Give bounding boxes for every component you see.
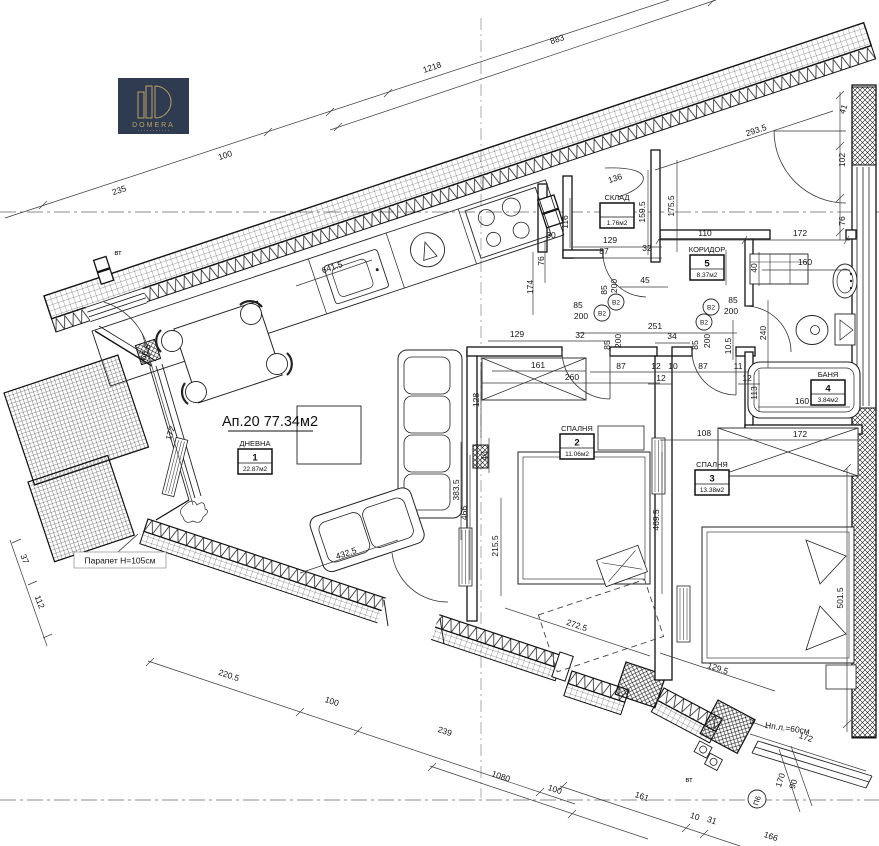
dimension-label: 160	[798, 257, 812, 267]
svg-text:22.87м2: 22.87м2	[243, 466, 268, 473]
door-size-marker: В2	[608, 294, 624, 310]
dimension-label: 172	[793, 429, 807, 439]
dimension-label: 172	[793, 228, 807, 238]
dimension-label: 90	[787, 778, 800, 790]
dimension-label: 466	[459, 506, 469, 520]
dimension-label: 100	[217, 148, 234, 162]
dimension-label: 170	[773, 772, 787, 789]
dimension-label: 31	[706, 814, 718, 827]
axis-marker: П6	[748, 790, 766, 808]
dimension-label: 85	[599, 285, 609, 295]
svg-text:ДНЕВНА: ДНЕВНА	[240, 439, 271, 448]
round-basin	[406, 228, 449, 271]
svg-text:В2: В2	[700, 320, 708, 327]
parapet-note: Парапет Н=105см	[74, 552, 166, 568]
svg-text:СПАЛНЯ: СПАЛНЯ	[561, 424, 593, 433]
dimension-label: 129	[603, 235, 617, 245]
dimension-label: 108	[697, 428, 711, 438]
dimension-label: 272.5	[565, 617, 589, 633]
dimension-label: 260	[565, 372, 579, 382]
dimension-label: 40	[479, 451, 489, 461]
dimension-label: 220.5	[217, 667, 241, 683]
svg-text:В2: В2	[598, 311, 606, 318]
chair	[156, 330, 182, 352]
dimension-label: 175.5	[666, 195, 676, 217]
dimension-label: 37	[18, 553, 31, 566]
dimension-label: 200	[574, 311, 588, 321]
dimension-label: 32	[575, 330, 585, 340]
dimension-label: 40	[749, 263, 759, 273]
dimension-label: 76	[837, 216, 847, 226]
dimension-label: 110	[698, 228, 712, 238]
bathroom-sink	[833, 264, 857, 298]
bed-bedroom3	[702, 527, 854, 663]
dimension-label: 85	[690, 340, 700, 350]
svg-text:13.38м2: 13.38м2	[700, 487, 725, 494]
svg-text:1: 1	[252, 453, 258, 464]
room-label: СПАЛНЯ211.06м2	[560, 424, 594, 459]
svg-text:СПАЛНЯ: СПАЛНЯ	[696, 460, 728, 469]
dimension-label: 161	[531, 360, 545, 370]
svg-text:8.37м2: 8.37м2	[697, 272, 718, 279]
nightstand	[598, 426, 644, 450]
dimension-label: 12	[651, 361, 661, 371]
svg-text:1.76м2: 1.76м2	[607, 220, 628, 227]
dimension-label: 85	[602, 340, 612, 350]
dimension-label: 166	[763, 829, 780, 843]
svg-text:11.06м2: 11.06м2	[565, 451, 589, 458]
dimension-label: 10	[689, 810, 701, 823]
dimension-label: 172	[163, 425, 177, 442]
dimension-label: 12	[656, 373, 666, 383]
chair	[240, 301, 262, 324]
balcony-parapet	[4, 355, 149, 562]
dimension-label: 100	[324, 694, 341, 708]
dimension-label: 159.5	[637, 201, 647, 223]
dimension-label: 383.5	[451, 479, 461, 501]
dimension-label: 87	[616, 361, 626, 371]
dimension-label: 100	[547, 782, 564, 796]
dimension-label: 200	[613, 334, 623, 348]
dimension-label: 87	[599, 246, 609, 256]
svg-text:4: 4	[825, 384, 831, 395]
toilet	[796, 314, 855, 345]
dimension-label: 10.5	[723, 337, 733, 354]
svg-text:3: 3	[709, 474, 714, 485]
room-label: ДНЕВНА122.87м2	[238, 439, 272, 474]
dimension-label: 1218	[421, 59, 442, 75]
dimension-label: 112	[33, 594, 47, 611]
vent-label-top: вт	[114, 248, 122, 257]
dimension-label: 85	[728, 295, 738, 305]
dimension-label: 10	[668, 361, 678, 371]
chair	[267, 353, 292, 375]
dimension-label: 200	[724, 306, 738, 316]
floor-plan-canvas: Ап.20 77.34м2 Парапет Н=105см Нп.л.=60см…	[0, 0, 879, 846]
wardrobe-bedroom3	[718, 428, 858, 476]
svg-text:В2: В2	[612, 300, 620, 307]
radiator	[677, 586, 690, 642]
dimension-label: 116	[560, 215, 570, 229]
room-label: КОРИДОР58.37м2	[689, 245, 725, 280]
dimension-label: 200	[609, 279, 619, 293]
dimension-label: 41	[837, 103, 850, 115]
logo: DOMERA	[118, 78, 189, 134]
dimension-label: 1080	[490, 768, 511, 784]
dimension-label: 469.5	[651, 509, 661, 531]
dimension-label: 240	[758, 326, 768, 340]
bottom-right-window	[752, 741, 872, 788]
parapet-note-text: Парапет Н=105см	[85, 556, 156, 566]
dimension-label: 129	[510, 329, 524, 339]
door-size-marker: В2	[703, 299, 719, 315]
svg-text:СКЛАД: СКЛАД	[604, 193, 629, 202]
dimension-label: 174	[525, 280, 535, 294]
svg-text:КОРИДОР: КОРИДОР	[689, 245, 725, 254]
apartment-title: Ап.20 77.34м2	[222, 414, 318, 431]
dimension-label: 501.5	[835, 587, 845, 609]
radiator	[652, 438, 665, 494]
dimension-label: 30	[546, 230, 556, 240]
room-label: СПАЛНЯ313.38м2	[695, 460, 729, 495]
dimension-label: 45	[640, 275, 650, 285]
dimension-label: 128	[471, 393, 481, 407]
svg-text:В2: В2	[707, 305, 715, 312]
nightstand	[826, 665, 856, 689]
dimension-label: 87	[698, 361, 708, 371]
svg-text:5: 5	[704, 259, 710, 270]
dimension-label: 76	[536, 256, 546, 266]
plant-symbol	[180, 501, 207, 522]
dimension-label: 32	[642, 243, 652, 253]
dimension-label: 34	[667, 331, 677, 341]
dimension-label: 251	[648, 321, 662, 331]
svg-text:БАНЯ: БАНЯ	[818, 370, 839, 379]
dimension-label: 883	[549, 32, 566, 46]
dimension-label: 200	[702, 334, 712, 348]
room-label: СКЛАД1.76м2	[600, 193, 634, 228]
sill-leader-number: 3	[750, 716, 755, 726]
floor-plan-page: Ап.20 77.34м2 Парапет Н=105см Нп.л.=60см…	[0, 0, 879, 846]
dimension-label: 113	[749, 386, 759, 400]
dimension-label: 235	[111, 183, 128, 197]
door-size-marker: В2	[696, 314, 712, 330]
svg-text:3.84м2: 3.84м2	[818, 397, 839, 404]
dimension-label: 161	[634, 789, 651, 803]
apartment-title-text: Ап.20 77.34м2	[222, 414, 318, 430]
dimension-label: 11	[734, 361, 743, 371]
door-size-marker: В2	[594, 305, 610, 321]
vent-shaft-bottom	[691, 741, 725, 771]
dimension-label: 215.5	[490, 535, 500, 557]
dimension-label: 239	[437, 724, 454, 738]
dimension-label: 12	[742, 373, 752, 383]
logo-brand-text: DOMERA	[132, 122, 175, 129]
dimension-label: 293.5	[744, 122, 768, 138]
dining-table	[156, 301, 292, 404]
dimension-label: 102	[837, 153, 847, 167]
bed-bedroom2	[518, 452, 650, 587]
radiator	[162, 437, 188, 496]
dimension-label: 172	[798, 730, 815, 744]
svg-text:2: 2	[574, 438, 579, 449]
dimension-label: 85	[573, 300, 583, 310]
dimension-label: 160	[795, 396, 809, 406]
dimension-label: 136	[607, 171, 624, 185]
vent-label-bottom: вт	[685, 775, 693, 784]
